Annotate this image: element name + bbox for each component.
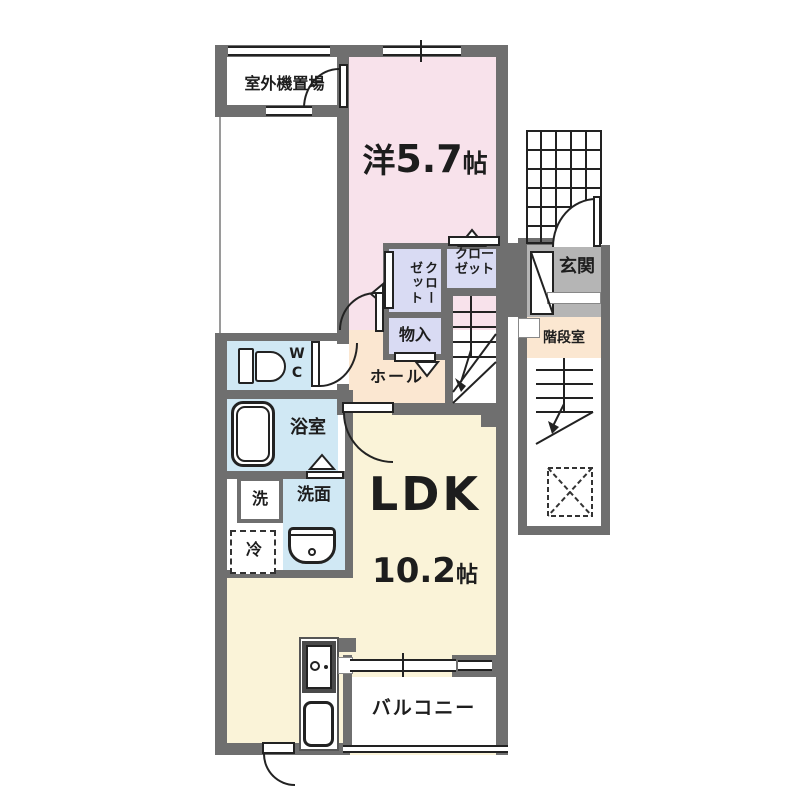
western-room-unit: 帖 — [463, 149, 488, 178]
internal-stairs-icon — [453, 296, 496, 403]
wc-door-leaf — [311, 341, 320, 387]
storage-label: 物入 — [389, 326, 441, 344]
western-room-name: 洋 — [362, 141, 395, 180]
ldk-label: LDK — [345, 468, 505, 521]
window-balcony-right — [458, 660, 492, 671]
bath-door-bar — [306, 471, 344, 479]
ldk-unit: 帖 — [456, 563, 478, 588]
balcony-sliding-tick — [402, 653, 404, 677]
fridge-label: 冷 — [242, 541, 266, 559]
entrance-label: 玄関 — [552, 257, 602, 278]
washer-label: 洗 — [248, 490, 272, 508]
void-cross-icon — [548, 468, 592, 516]
washroom-label: 洗面 — [284, 486, 344, 506]
window-western-tick — [420, 40, 422, 62]
window-western-top — [383, 46, 461, 56]
closet-right-track — [448, 236, 500, 246]
ldk-size: 10.2 — [372, 551, 456, 591]
hall-label: ホール — [352, 368, 442, 386]
closet-left-label: クロー ゼット — [398, 253, 436, 313]
stairwell-stairs-icon — [536, 358, 593, 444]
line-art-layer — [0, 0, 800, 800]
closet-left-track — [384, 251, 394, 309]
storage-track — [394, 352, 436, 362]
western-room-label: 洋5.7帖 — [352, 138, 498, 182]
balcony-label: バルコニー — [352, 698, 496, 720]
wc-label: WC — [288, 345, 306, 383]
bath-label: 浴室 — [282, 418, 334, 439]
window-outdoor-top — [228, 46, 330, 56]
stairwell-label: 階段室 — [522, 330, 606, 346]
ldk-size-label: 10.2帖 — [345, 552, 505, 591]
outdoor-unit-label: 室外機置場 — [227, 75, 342, 93]
bath-door-marker — [310, 455, 334, 469]
shoe-cabinet-diagonal — [531, 252, 553, 314]
balcony-railing — [343, 745, 508, 753]
closet-right-label: クロー ゼット — [447, 248, 502, 278]
western-room-size: 5.7 — [395, 137, 462, 181]
service-door-leaf — [262, 742, 295, 754]
floor-plan: 室外機置場 洋5.7帖 クロー ゼット クロー ゼット 物入 ホール WC 浴室… — [0, 0, 800, 800]
entrance-door-leaf — [593, 196, 601, 247]
western-room-door-leaf — [375, 292, 384, 332]
ldk-door-leaf — [342, 402, 394, 413]
